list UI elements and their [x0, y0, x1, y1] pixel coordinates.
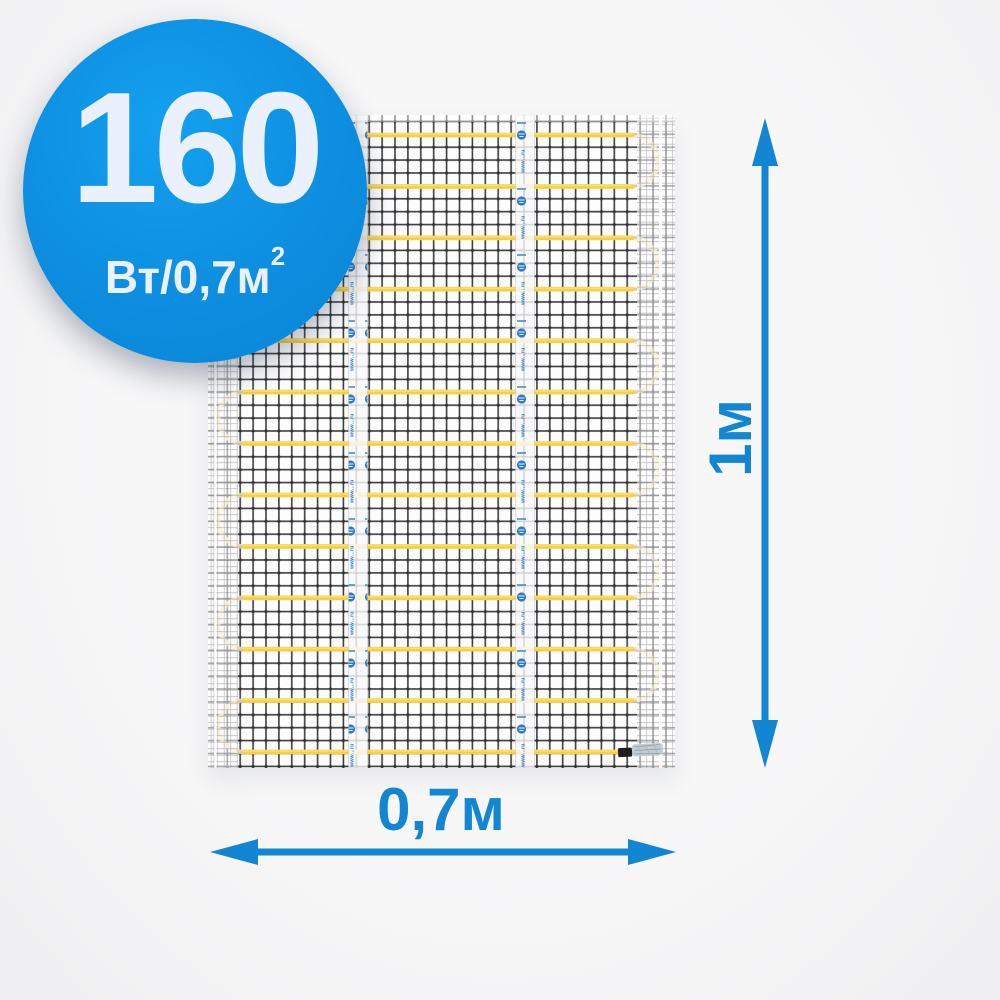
mat-selvage-right — [637, 115, 675, 768]
arrowhead-up — [752, 118, 778, 166]
power-unit-base: Вт/0,7м — [105, 251, 271, 303]
power-unit-exponent: 2 — [271, 241, 285, 271]
arrowhead-down — [752, 720, 778, 768]
mat-tape-right — [516, 115, 535, 768]
product-image: www…ru — [0, 0, 1000, 1000]
width-dimension-label: 0,7м — [341, 784, 541, 836]
power-badge: 160 Вт/0,7м2 — [23, 19, 367, 363]
arrowhead-left — [210, 839, 258, 865]
power-value: 160 — [71, 69, 320, 227]
height-dimension-label: 1м — [701, 378, 761, 498]
arrowhead-right — [628, 839, 676, 865]
power-unit: Вт/0,7м2 — [105, 243, 285, 300]
